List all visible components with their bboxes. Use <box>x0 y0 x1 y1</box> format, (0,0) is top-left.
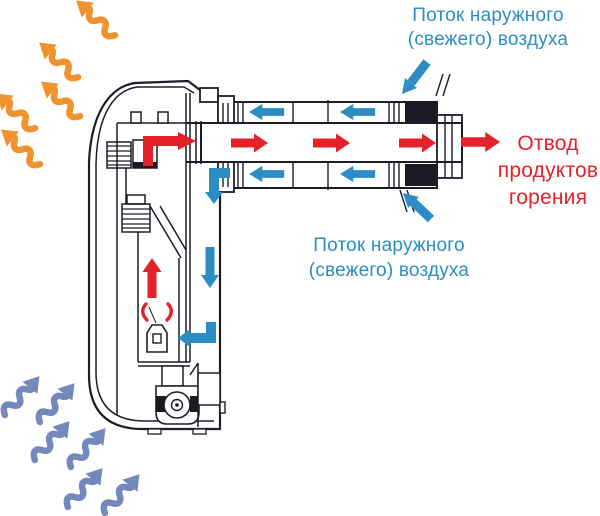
label-line: Поток наружного <box>313 235 464 256</box>
pipe-seal <box>405 103 436 122</box>
blue-elbow-left-icon <box>190 322 211 338</box>
flame-icon <box>167 304 171 320</box>
panel-clip <box>131 112 141 123</box>
wavy-arrow-up-right-icon <box>32 377 82 427</box>
airflow-diagram: Поток наружного (свежего) воздуха Отвод … <box>0 0 600 516</box>
wavy-arrow-up-left-icon <box>33 35 83 85</box>
wavy-arrow-up-right-icon <box>97 468 147 516</box>
blue-arrow-head <box>201 275 219 288</box>
label-line: продуктов <box>498 159 598 182</box>
wavy-arrow-up-right-icon <box>63 422 113 472</box>
red-arrow-head <box>178 132 196 150</box>
red-right-arrow-icon <box>461 132 500 152</box>
label-line: горения <box>509 186 587 209</box>
label-line: (свежего) воздуха <box>408 29 569 50</box>
flue-neck <box>200 88 218 102</box>
wavy-arrow-up-left-icon <box>0 86 41 136</box>
label-line: (свежего) воздуха <box>309 260 470 281</box>
diagram-canvas: Поток наружного (свежего) воздуха Отвод … <box>0 0 600 516</box>
wavy-arrow-up-left-icon <box>70 0 120 43</box>
flame-icon <box>143 304 147 320</box>
blue-arrow-head <box>178 329 190 347</box>
label-line: Поток наружного <box>412 5 563 26</box>
foot <box>193 429 206 434</box>
label-fresh-air-bottom: Поток наружного (свежего) воздуха <box>309 235 470 281</box>
label-pointer-arrow <box>413 202 431 219</box>
red-elbow-arrow-icon <box>148 141 178 166</box>
foot <box>148 429 161 434</box>
pipe-seal <box>405 164 436 186</box>
label-exhaust: Отвод продуктов горения <box>498 132 598 209</box>
burner-icon <box>143 304 172 352</box>
cool-air-arrows <box>0 370 147 516</box>
warm-air-arrows <box>0 0 121 172</box>
panel-clip <box>158 112 168 123</box>
label-fresh-air-top: Поток наружного (свежего) воздуха <box>408 5 569 50</box>
fan-unit <box>156 363 225 427</box>
wavy-arrow-up-left-icon <box>35 74 85 124</box>
heat-exchanger-middle <box>122 195 186 258</box>
heat-exchanger-upper <box>107 142 131 168</box>
label-pointer-arrow <box>411 62 427 83</box>
red-up-arrow-icon <box>143 258 162 298</box>
label-line: Отвод <box>517 132 578 155</box>
